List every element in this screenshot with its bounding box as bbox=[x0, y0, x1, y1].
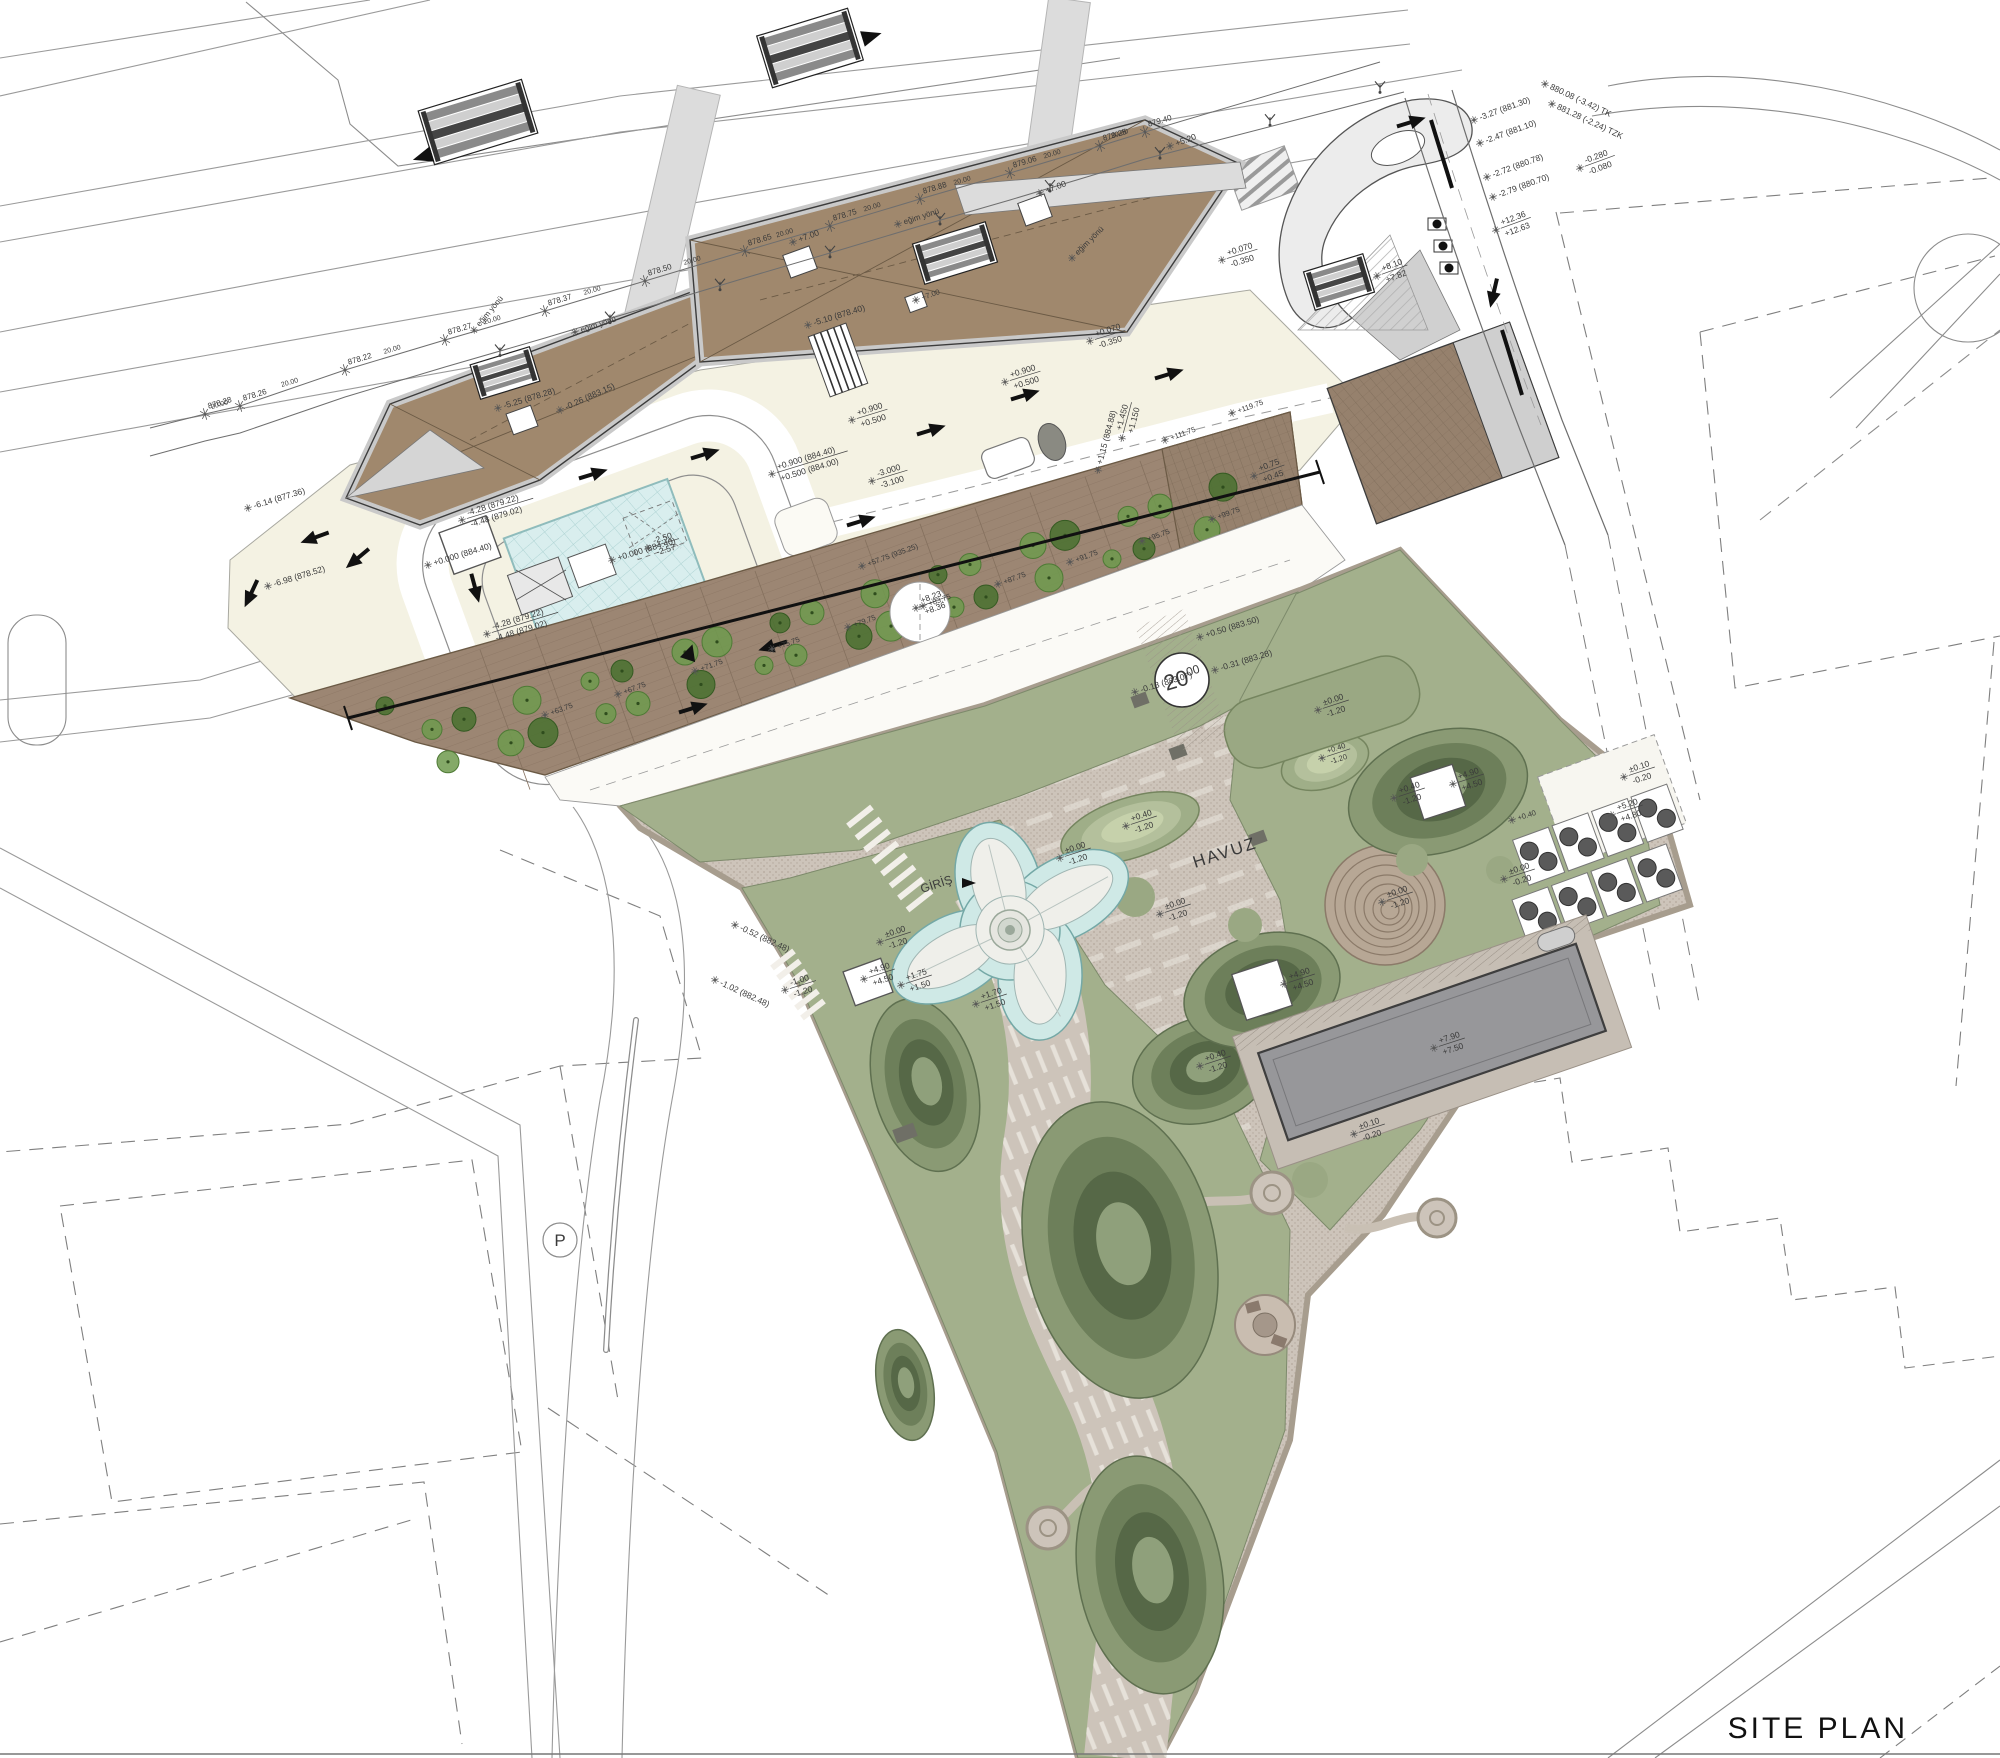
bus-shelter bbox=[757, 8, 864, 87]
level-text: -2.79 (880.70) bbox=[1497, 171, 1551, 199]
road-elevation-marker: 878.22 bbox=[338, 351, 375, 377]
level-annotation: -0.280-0.080 bbox=[1573, 145, 1619, 180]
terrace-circle-opening bbox=[890, 582, 950, 642]
tree-trunk bbox=[699, 683, 702, 686]
tree-trunk bbox=[588, 680, 591, 683]
tree-trunk bbox=[462, 718, 465, 721]
mound bbox=[868, 1325, 943, 1445]
parking-symbol-label: P bbox=[554, 1231, 565, 1250]
parking-symbol-circle: P bbox=[543, 1223, 577, 1257]
site-plan-canvas: { "title": { "text": "SITE PLAN" }, "lab… bbox=[0, 0, 2000, 1758]
bus-shelter bbox=[418, 79, 538, 164]
tree-trunk bbox=[1158, 505, 1161, 508]
survey-marker-icon bbox=[1547, 99, 1558, 110]
tree-trunk bbox=[1047, 576, 1050, 579]
survey-marker-icon bbox=[730, 920, 741, 931]
tree-trunk bbox=[873, 592, 876, 595]
tree-trunk bbox=[1205, 528, 1208, 531]
playground bbox=[1235, 1295, 1295, 1355]
level-text: -2.47 (881.10) bbox=[1484, 117, 1538, 145]
survey-marker-icon bbox=[1475, 138, 1485, 148]
tree-trunk bbox=[810, 611, 813, 614]
road-elevation-label: 878.22 bbox=[347, 351, 374, 367]
level-annotation: -1.02 (882.48) bbox=[709, 973, 771, 1009]
flow-arrow-icon bbox=[1483, 277, 1503, 309]
road-elevation-label: 878.27 bbox=[447, 321, 474, 337]
tree-trunk bbox=[968, 563, 971, 566]
tree-trunk bbox=[541, 731, 544, 734]
tree-trunk bbox=[778, 621, 781, 624]
shelter-arrow-icon bbox=[860, 25, 884, 46]
tree-trunk bbox=[446, 760, 449, 763]
garage-roof bbox=[1327, 322, 1559, 524]
tree-trunk bbox=[525, 699, 528, 702]
road-elevation-label: 878.26 bbox=[242, 387, 269, 403]
survey-marker-icon bbox=[1575, 163, 1585, 173]
survey-marker-icon bbox=[1491, 225, 1501, 235]
tree-trunk bbox=[1110, 557, 1113, 560]
tree-trunk bbox=[1221, 486, 1224, 489]
level-text: -3.27 (881.30) bbox=[1478, 94, 1532, 122]
curved-junction bbox=[1279, 99, 1472, 360]
tree-trunk bbox=[889, 625, 892, 628]
level-text: -1.02 (882.48) bbox=[719, 978, 772, 1010]
level-annotation: -2.47 (881.10) bbox=[1474, 117, 1537, 148]
tree-trunk bbox=[1126, 515, 1129, 518]
tree-trunk bbox=[857, 635, 860, 638]
title-block: SITE PLAN bbox=[0, 1712, 2000, 1754]
level-annotation: +12.36+12.63 bbox=[1489, 207, 1535, 242]
tree-trunk bbox=[604, 712, 607, 715]
survey-marker-icon bbox=[243, 503, 253, 513]
survey-marker-icon bbox=[1488, 192, 1498, 202]
tree-trunk bbox=[794, 654, 797, 657]
tree-trunk bbox=[715, 640, 718, 643]
road-elevation-marker: 878.26 bbox=[233, 387, 270, 413]
road-elevation-marker: 878.27 bbox=[438, 321, 475, 347]
survey-marker-icon bbox=[1540, 79, 1551, 90]
site-plan-drawing: P bbox=[0, 0, 2000, 1758]
tree-trunk bbox=[984, 595, 987, 598]
tree-trunk bbox=[952, 605, 955, 608]
tree-trunk bbox=[620, 669, 623, 672]
tree-trunk bbox=[936, 573, 939, 576]
drawing-title: SITE PLAN bbox=[1728, 1712, 1908, 1745]
survey-marker-icon bbox=[1482, 172, 1492, 182]
survey-marker-icon bbox=[710, 975, 721, 986]
tree-trunk bbox=[636, 702, 639, 705]
level-annotation: +0.070-0.350 bbox=[1215, 239, 1261, 272]
tree-trunk bbox=[430, 728, 433, 731]
tree-trunk bbox=[509, 741, 512, 744]
survey-marker-icon bbox=[1217, 255, 1227, 265]
tree-trunk bbox=[762, 664, 765, 667]
tree-trunk bbox=[1142, 547, 1145, 550]
street-tree-icon bbox=[1265, 114, 1275, 127]
